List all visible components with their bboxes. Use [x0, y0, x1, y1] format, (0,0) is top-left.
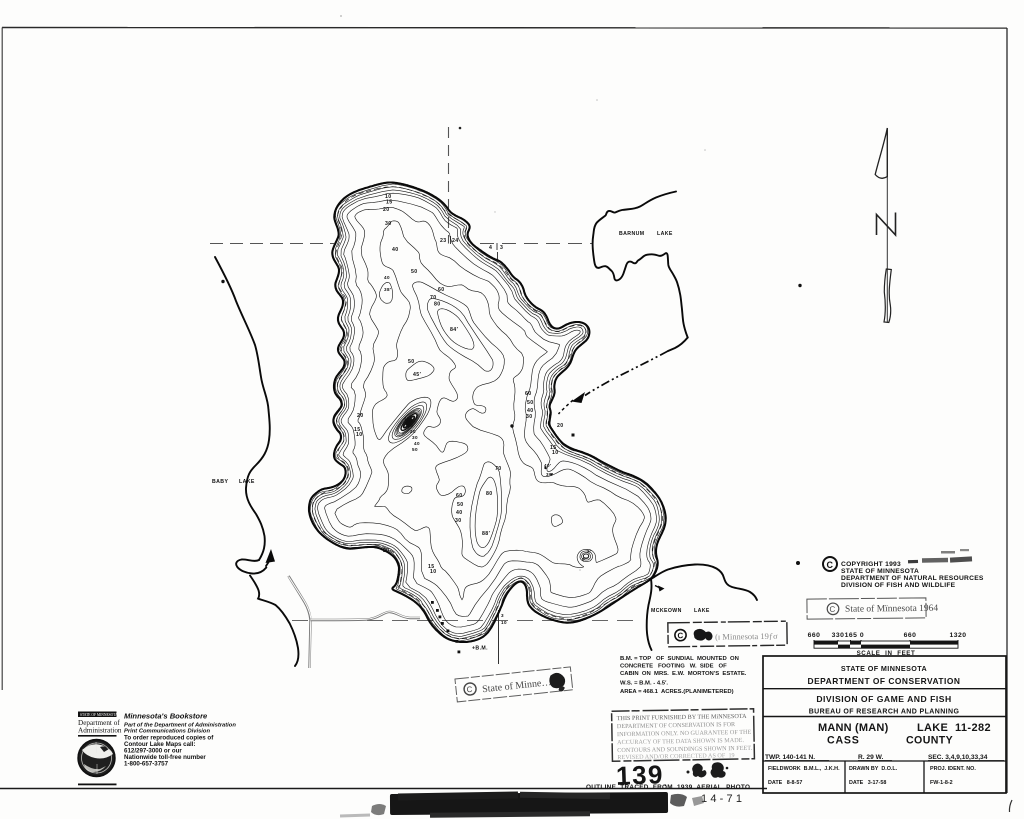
- svg-text:0: 0: [582, 557, 585, 562]
- svg-text:DIVISION OF GAME AND FISH: DIVISION OF GAME AND FISH: [816, 694, 951, 704]
- svg-text:CONCRETE FOOTING W. SIDE: CONCRETE FOOTING W. SIDE OF: [620, 664, 727, 670]
- svg-text:W.S. = B.M. - 4.5′.: W.S. = B.M. - 4.5′.: [620, 681, 668, 687]
- svg-text:COUNTY: COUNTY: [906, 735, 953, 747]
- svg-text:660: 660: [808, 632, 821, 639]
- svg-text:10: 10: [501, 620, 507, 625]
- svg-text:FW-1-8-2: FW-1-8-2: [930, 780, 953, 786]
- svg-text:0: 0: [860, 632, 864, 639]
- svg-text:660: 660: [904, 632, 917, 639]
- svg-text:24: 24: [452, 238, 459, 244]
- svg-text:LAKE: LAKE: [917, 722, 948, 734]
- svg-text:40: 40: [456, 510, 463, 516]
- svg-text:DIVISION OF FISH AND WILDLIFE: DIVISION OF FISH AND WILDLIFE: [841, 582, 956, 589]
- svg-text:20: 20: [383, 548, 390, 554]
- svg-text:FIELDWORK B.M.L., J.K.H.: FIELDWORK B.M.L., J.K.H.: [768, 766, 840, 772]
- svg-text:10: 10: [356, 432, 363, 438]
- svg-text:(ɪ Mіnneѕоtа 19ƒσ: (ɪ Mіnneѕоtа 19ƒσ: [715, 631, 778, 642]
- svg-text:LAKE: LAKE: [694, 608, 710, 614]
- svg-text:C: C: [677, 631, 683, 640]
- svg-text:10: 10: [430, 569, 437, 575]
- svg-text:STATE OF MINNESOTA: STATE OF MINNESOTA: [80, 713, 118, 717]
- svg-text:40: 40: [414, 441, 420, 446]
- svg-text:PROJ. IDENT. NO.: PROJ. IDENT. NO.: [930, 766, 976, 772]
- svg-text:C: C: [829, 605, 835, 614]
- svg-text:MCKEOWN: MCKEOWN: [651, 608, 682, 614]
- svg-text:15: 15: [386, 200, 393, 206]
- svg-text:3: 3: [501, 613, 504, 618]
- svg-text:BUREAU OF RESEARCH AND PLANNIN: BUREAU OF RESEARCH AND PLANNING: [809, 709, 960, 716]
- svg-text:40: 40: [384, 275, 390, 280]
- svg-text:30: 30: [455, 518, 462, 524]
- svg-text:Administration: Administration: [78, 727, 122, 735]
- svg-text:R. 29 W.: R. 29 W.: [858, 754, 883, 761]
- svg-text:4′: 4′: [404, 416, 409, 421]
- svg-text:10: 10: [407, 423, 413, 428]
- svg-text:330: 330: [832, 632, 845, 639]
- svg-text:10: 10: [552, 450, 559, 456]
- svg-text:4: 4: [489, 245, 492, 251]
- svg-text:50: 50: [412, 447, 418, 452]
- svg-text:CASS: CASS: [827, 735, 860, 747]
- svg-text:23: 23: [440, 238, 447, 244]
- svg-text:COPYRIGHT 1993: COPYRIGHT 1993: [841, 561, 901, 568]
- svg-text:C: C: [466, 685, 473, 695]
- svg-text:BABY: BABY: [212, 479, 228, 485]
- svg-text:AREA = 468.1 ACRES.(PLANIMETE: AREA = 468.1 ACRES.(PLANIMETERED): [620, 689, 734, 695]
- svg-text:OUTLINE TRACED FROM 1939 A: OUTLINE TRACED FROM 1939 AERIAL PHOTO.: [586, 784, 752, 791]
- svg-text:20: 20: [357, 413, 364, 419]
- svg-text:80: 80: [434, 302, 441, 308]
- svg-text:60: 60: [525, 391, 532, 397]
- svg-text:38′: 38′: [384, 287, 392, 292]
- svg-text:50: 50: [457, 502, 464, 508]
- svg-text:STATE OF MINNESOTA: STATE OF MINNESOTA: [841, 568, 919, 575]
- svg-text:50: 50: [408, 359, 415, 365]
- svg-text:45′: 45′: [413, 372, 422, 378]
- svg-text:50: 50: [411, 269, 418, 275]
- svg-text:+B.M.: +B.M.: [472, 646, 488, 652]
- svg-text:3: 3: [500, 245, 503, 251]
- svg-text:SEC. 3,4,9,10,33,34: SEC. 3,4,9,10,33,34: [928, 754, 988, 761]
- svg-text:14-71: 14-71: [701, 793, 745, 805]
- svg-text:30: 30: [385, 221, 392, 227]
- svg-text:50: 50: [527, 400, 534, 406]
- svg-text:84′: 84′: [450, 327, 459, 333]
- svg-text:60: 60: [438, 287, 445, 293]
- svg-text:CABIN ON MRS. E.W. MORTON': CABIN ON MRS. E.W. MORTON'S ESTATE.: [620, 671, 747, 677]
- svg-text:40′: 40′: [544, 463, 552, 468]
- svg-text:STATE OF MINNESOTA: STATE OF MINNESOTA: [841, 664, 927, 673]
- svg-text:DATE 8-8-57: DATE 8-8-57: [768, 780, 802, 786]
- svg-text:70: 70: [495, 466, 502, 472]
- svg-text:BARNUM: BARNUM: [619, 231, 644, 237]
- svg-text:MANN (MAN): MANN (MAN): [818, 722, 889, 734]
- svg-text:11-282: 11-282: [955, 722, 991, 734]
- svg-text:39′: 39′: [546, 472, 554, 477]
- svg-text:70: 70: [430, 295, 437, 301]
- svg-text:40: 40: [392, 247, 399, 253]
- svg-text:C: C: [827, 560, 834, 570]
- svg-text:20: 20: [557, 423, 564, 429]
- svg-text:State of Mïnnesota 1964: State of Mïnnesota 1964: [845, 603, 938, 615]
- svg-text:SCALE IN FEET: SCALE IN FEET: [857, 650, 916, 657]
- svg-text:1-800-657-3757: 1-800-657-3757: [124, 761, 169, 768]
- svg-text:20: 20: [410, 429, 416, 434]
- svg-text:DEPARTMENT OF NATURAL RESOURCE: DEPARTMENT OF NATURAL RESOURCES: [841, 575, 984, 582]
- svg-text:DATE 3-17-58: DATE 3-17-58: [849, 780, 886, 786]
- svg-text:LAKE: LAKE: [239, 479, 255, 485]
- svg-text:TWP. 140-141 N.: TWP. 140-141 N.: [765, 754, 815, 761]
- svg-text:2′: 2′: [587, 549, 592, 554]
- svg-text:Minnesota's Bookstore: Minnesota's Bookstore: [124, 712, 208, 721]
- svg-text:30: 30: [526, 414, 533, 420]
- svg-text:165: 165: [845, 632, 858, 639]
- svg-text:1320: 1320: [949, 632, 966, 639]
- svg-text:DRAWN BY D.O.L.: DRAWN BY D.O.L.: [849, 766, 898, 772]
- svg-text:80: 80: [486, 491, 493, 497]
- svg-text:60: 60: [456, 493, 463, 499]
- svg-text:LAKE: LAKE: [657, 231, 673, 237]
- svg-text:30: 30: [412, 435, 418, 440]
- svg-text:20: 20: [383, 207, 390, 213]
- svg-text:DEPARTMENT OF CONSERVATION: DEPARTMENT OF CONSERVATION: [808, 676, 961, 686]
- svg-text:B.M. = TOP OF SUNDIAL MOUN: B.M. = TOP OF SUNDIAL MOUNTED ON: [620, 656, 739, 662]
- svg-text:88′: 88′: [482, 531, 491, 537]
